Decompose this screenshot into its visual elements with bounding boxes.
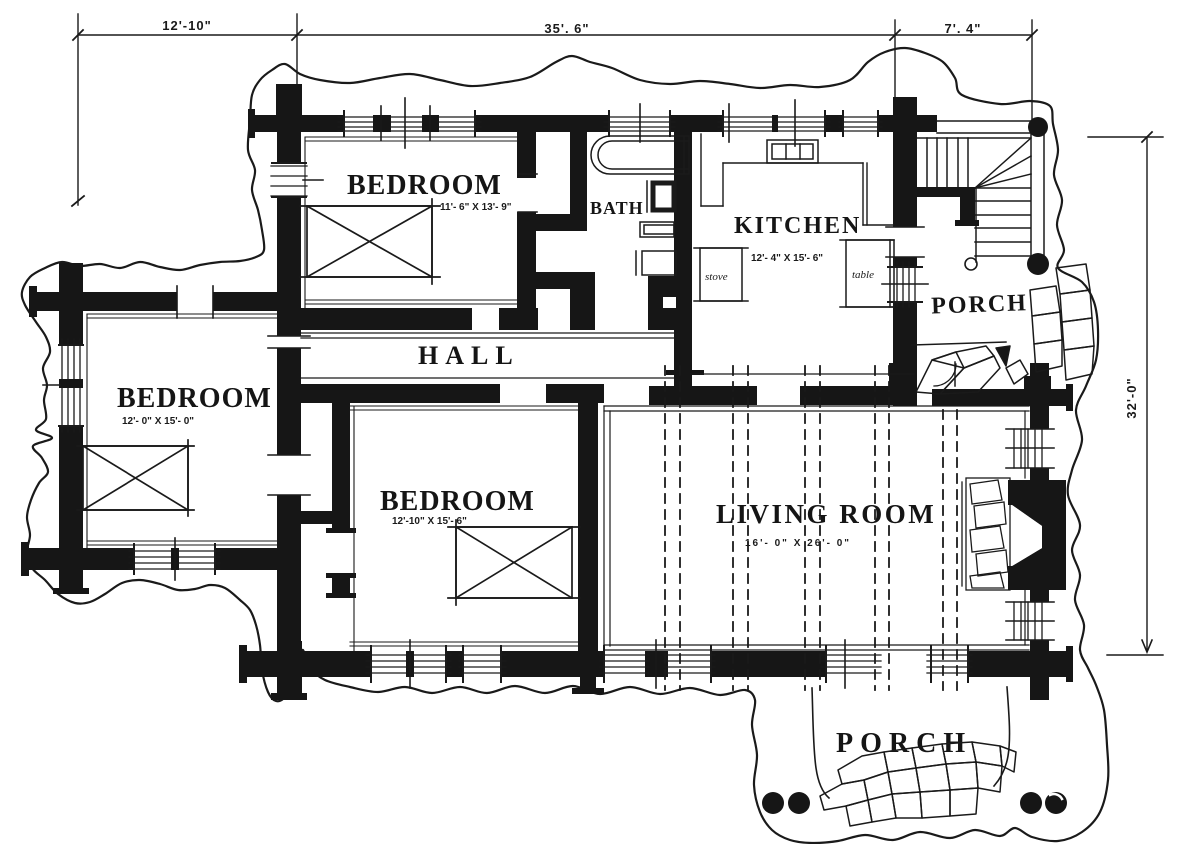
svg-text:12'- 0" X 15'- 0": 12'- 0" X 15'- 0" [122,416,194,427]
svg-text:11'- 6" X 13'- 9": 11'- 6" X 13'- 9" [440,202,512,213]
svg-text:35'. 6": 35'. 6" [544,21,589,36]
svg-text:KITCHEN: KITCHEN [734,213,861,239]
svg-text:HALL: HALL [418,341,520,370]
svg-text:BEDROOM: BEDROOM [117,383,272,414]
svg-text:BATH: BATH [590,198,644,218]
svg-text:LIVING ROOM: LIVING ROOM [716,499,936,529]
svg-text:BEDROOM: BEDROOM [347,170,502,201]
svg-text:stove: stove [705,271,728,283]
svg-text:BEDROOM: BEDROOM [380,486,535,517]
svg-text:7'. 4": 7'. 4" [945,21,982,36]
svg-text:table: table [852,269,874,281]
svg-text:PORCH: PORCH [931,290,1029,319]
svg-text:16'- 0" X 26'- 0": 16'- 0" X 26'- 0" [745,538,851,549]
svg-text:32'-0": 32'-0" [1124,377,1139,418]
svg-text:12'-10": 12'-10" [162,18,212,33]
svg-text:12'- 4" X 15'- 6": 12'- 4" X 15'- 6" [751,253,823,264]
